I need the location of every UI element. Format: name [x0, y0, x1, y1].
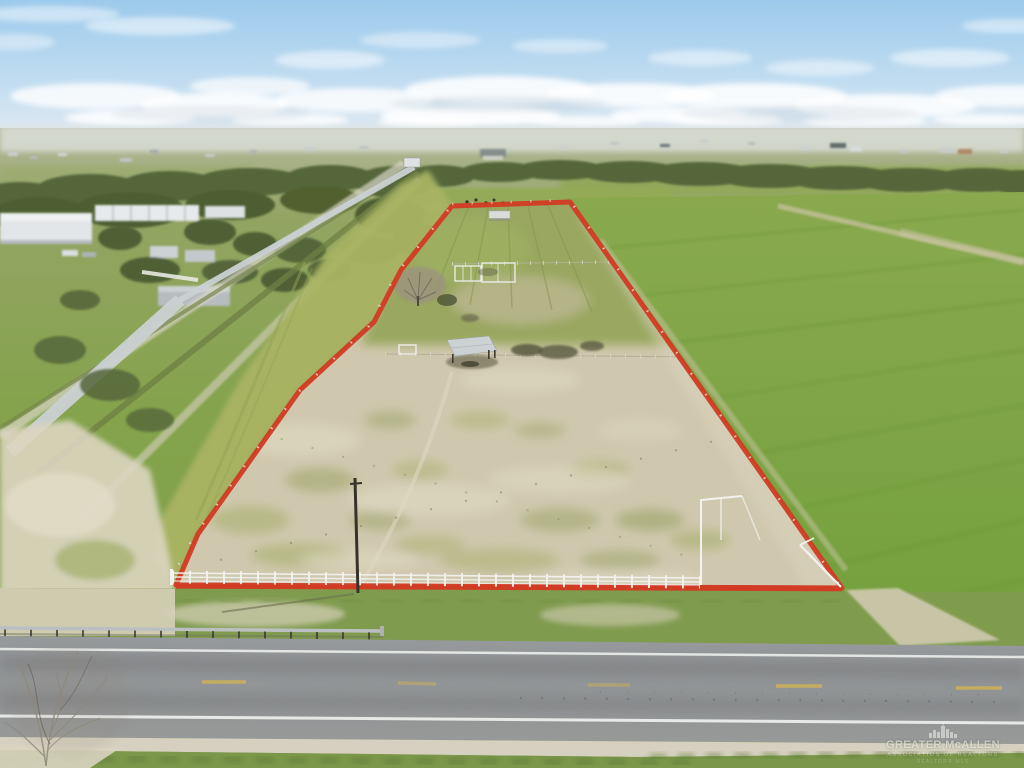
highway	[0, 636, 1024, 744]
aerial-photo: GREATER McALLEN ASSOCIATION OF REALTORS …	[0, 0, 1024, 768]
horizon-haze	[0, 126, 1024, 152]
road-verge	[0, 588, 1024, 646]
scene-illustration	[0, 0, 1024, 768]
boundary-front-line	[176, 588, 842, 589]
canal-headgate	[404, 158, 420, 167]
back-shed	[489, 211, 510, 221]
